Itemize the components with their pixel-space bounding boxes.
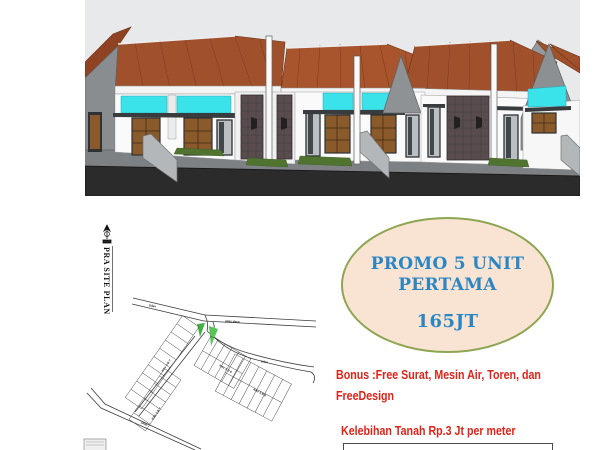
green-area bbox=[209, 326, 218, 346]
legend-box bbox=[84, 439, 106, 450]
block-label: KAV 5 B 7 bbox=[151, 406, 163, 420]
cyan-transom bbox=[177, 96, 231, 113]
wood-window bbox=[532, 113, 556, 133]
downspout-pipe bbox=[354, 56, 360, 164]
promo-price: 165JT bbox=[417, 311, 479, 332]
cyan-transom bbox=[528, 86, 566, 107]
window bbox=[406, 115, 419, 157]
road-label: jalan bbox=[260, 359, 269, 365]
house-render-image bbox=[85, 0, 580, 196]
site-plan-title: PRA SITE PLAN bbox=[102, 247, 111, 315]
downspout-pipe bbox=[266, 36, 272, 166]
wall-lamp bbox=[476, 116, 482, 129]
compass-icon bbox=[103, 225, 111, 243]
wall-lamp bbox=[251, 117, 257, 130]
flyer-page: PRA SITE PLAN jalan jalan desa jalan jal… bbox=[0, 0, 600, 450]
roads bbox=[87, 298, 316, 450]
promo-line1: PROMO 5 UNIT bbox=[371, 254, 525, 275]
site-plan-image: PRA SITE PLAN jalan jalan desa jalan jal… bbox=[83, 220, 318, 450]
land-note-text: Kelebihan Tanah Rp.3 Jt per meter bbox=[341, 423, 516, 438]
block-label: KAV 5 B 7 bbox=[161, 358, 173, 372]
green-area bbox=[197, 323, 205, 337]
window bbox=[504, 115, 518, 160]
window bbox=[428, 107, 440, 157]
bottom-outline-box bbox=[343, 443, 553, 450]
wood-door bbox=[325, 115, 350, 153]
promo-line2: PERTAMA bbox=[398, 275, 497, 296]
window bbox=[306, 112, 320, 156]
cyan-transom bbox=[323, 93, 353, 110]
wall-lamp bbox=[281, 117, 287, 130]
block-label: KAV 5 B 6 bbox=[219, 363, 234, 374]
road-label: jalan desa bbox=[224, 319, 240, 324]
site-plan-svg: PRA SITE PLAN jalan jalan desa jalan jal… bbox=[83, 220, 318, 450]
lot-block bbox=[125, 316, 199, 409]
lot-block bbox=[129, 369, 181, 431]
promo-ellipse: PROMO 5 UNIT PERTAMA 165JT bbox=[341, 217, 554, 353]
block-label: KAV 5 B 6 bbox=[253, 387, 268, 397]
downspout-pipe bbox=[491, 44, 497, 164]
house-render-svg bbox=[85, 0, 580, 196]
bonus-text: Bonus :Free Surat, Mesin Air, Toren, dan… bbox=[336, 364, 541, 406]
wall-lamp bbox=[454, 116, 460, 129]
cyan-transom bbox=[121, 96, 167, 113]
